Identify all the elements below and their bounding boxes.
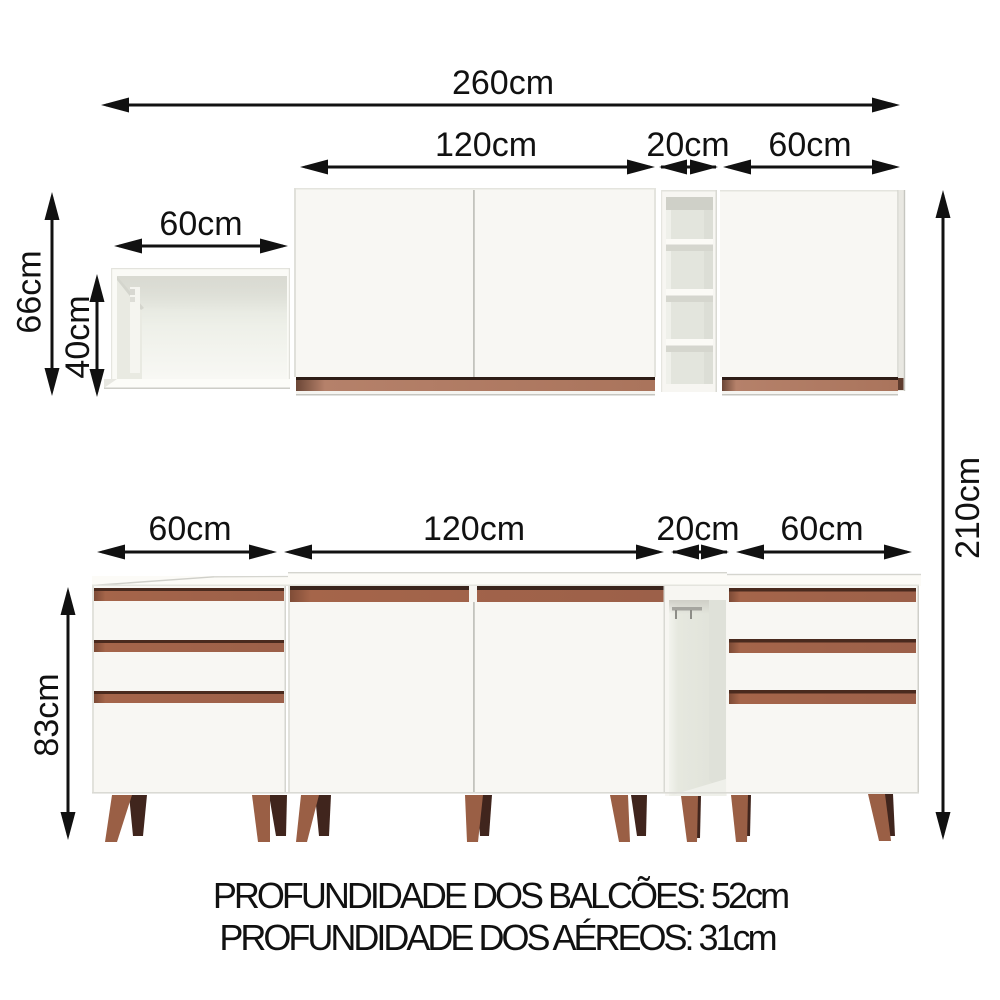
svg-text:120cm: 120cm [423,510,525,548]
svg-text:40cm: 40cm [59,295,97,378]
svg-text:60cm: 60cm [159,205,242,243]
svg-text:PROFUNDIDADE DOS AÉREOS: 31cm: PROFUNDIDADE DOS AÉREOS: 31cm [219,917,775,958]
svg-text:60cm: 60cm [768,126,851,164]
svg-text:20cm: 20cm [656,510,739,548]
svg-text:60cm: 60cm [148,510,231,548]
svg-text:120cm: 120cm [435,126,537,164]
svg-text:260cm: 260cm [452,64,554,102]
svg-text:83cm: 83cm [28,673,66,756]
svg-text:20cm: 20cm [646,126,729,164]
svg-text:60cm: 60cm [780,510,863,548]
svg-text:PROFUNDIDADE DOS BALCÕES: 52cm: PROFUNDIDADE DOS BALCÕES: 52cm [213,875,788,916]
svg-text:210cm: 210cm [949,457,987,559]
svg-text:66cm: 66cm [11,250,49,333]
